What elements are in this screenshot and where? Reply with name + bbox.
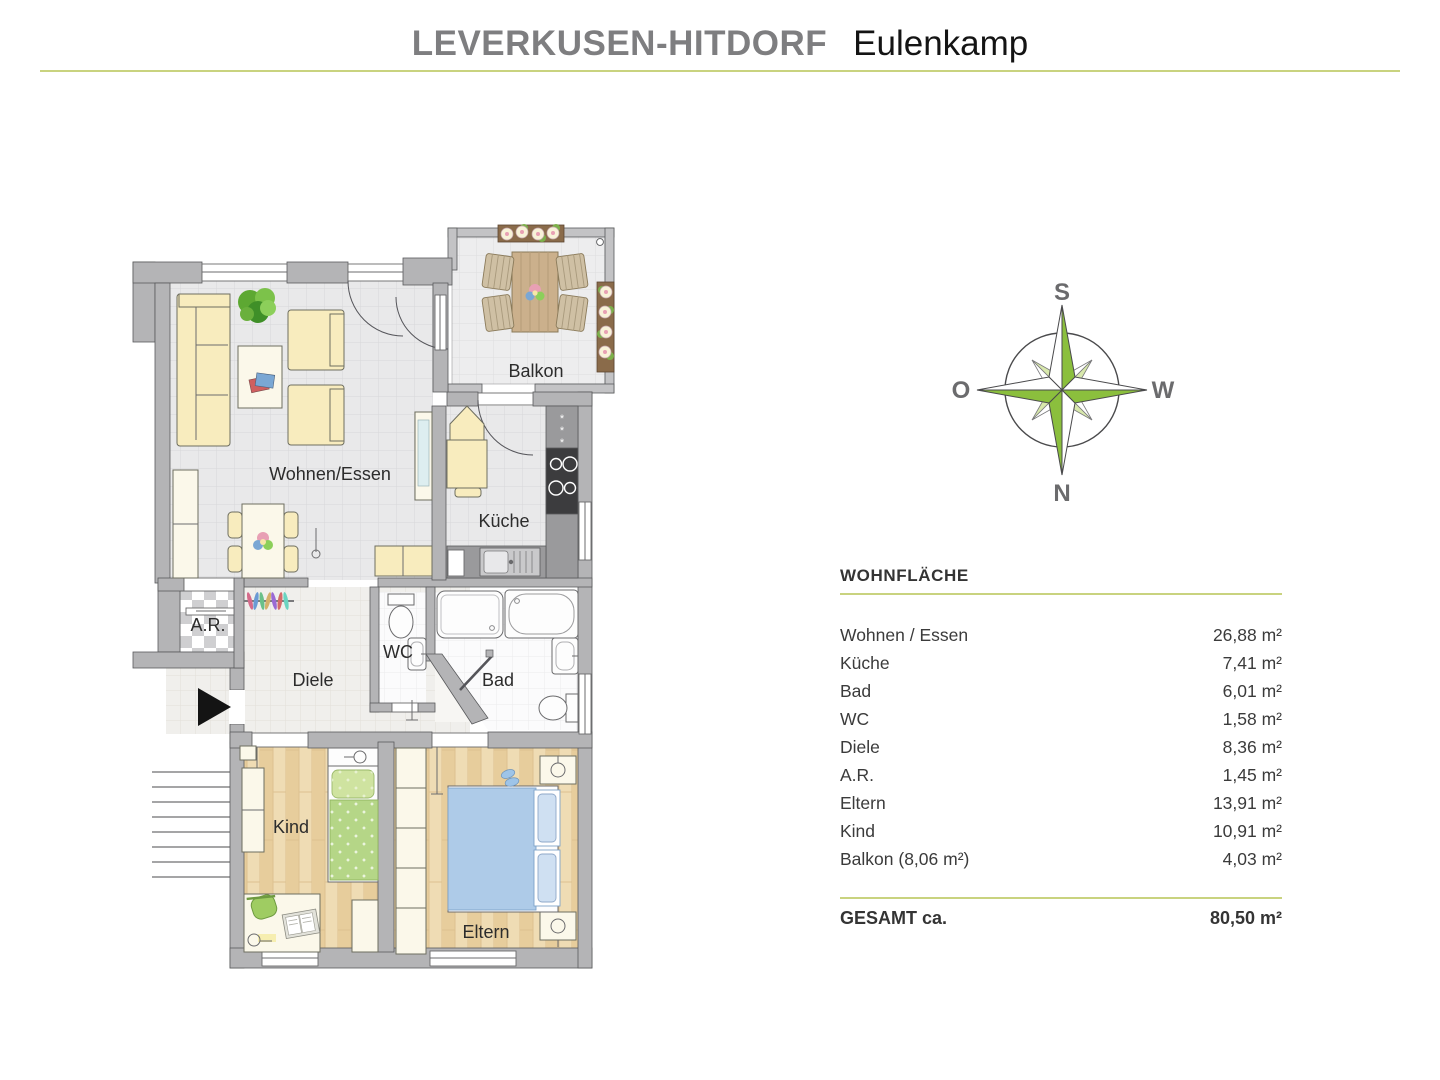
compass-main-points — [977, 305, 1147, 475]
svg-text:*: * — [560, 413, 565, 425]
title-location: LEVERKUSEN-HITDORF — [412, 24, 827, 64]
area-table-total: GESAMT ca. 80,50 m² — [840, 897, 1282, 929]
row-value: 8,36 m² — [1223, 737, 1282, 758]
row-label: Küche — [840, 653, 890, 674]
child-wardrobe — [242, 768, 264, 852]
wc-toilet — [388, 594, 414, 638]
header-divider — [40, 70, 1400, 72]
label-storage: A.R. — [190, 615, 225, 635]
svg-text:*: * — [560, 437, 565, 449]
balcony-table — [512, 252, 558, 332]
flower-planter-right — [597, 282, 614, 372]
row-value: 1,58 m² — [1223, 709, 1282, 730]
armchair — [288, 385, 344, 445]
armchair — [288, 310, 344, 370]
tall-cabinet — [415, 412, 432, 500]
table-row: Diele8,36 m² — [840, 733, 1282, 761]
bath-sink — [552, 638, 578, 674]
row-label: Wohnen / Essen — [840, 625, 968, 646]
row-label: WC — [840, 709, 869, 730]
row-label: Bad — [840, 681, 871, 702]
table-row: Eltern13,91 m² — [840, 789, 1282, 817]
table-row: Kind10,91 m² — [840, 817, 1282, 845]
balcony-door-panel — [435, 295, 446, 350]
row-value: 26,88 m² — [1213, 625, 1282, 646]
area-table-title: WOHNFLÄCHE — [840, 566, 1282, 595]
row-value: 4,03 m² — [1223, 849, 1282, 870]
kitchen-window — [579, 502, 591, 560]
table-row: Bad6,01 m² — [840, 677, 1282, 705]
row-value: 10,91 m² — [1213, 821, 1282, 842]
table-row: Küche7,41 m² — [840, 649, 1282, 677]
compass-label-east: O — [952, 377, 971, 404]
label-bath: Bad — [482, 670, 514, 690]
sideboard — [173, 470, 198, 578]
stairs — [152, 772, 230, 877]
entrance-opening — [229, 690, 245, 724]
svg-text:*: * — [560, 425, 565, 437]
table-row: Balkon (8,06 m²)4,03 m² — [840, 845, 1282, 873]
parents-window — [430, 951, 516, 966]
total-value: 80,50 m² — [1210, 908, 1282, 929]
row-value: 1,45 m² — [1223, 765, 1282, 786]
area-table-rows: Wohnen / Essen26,88 m² Küche7,41 m² Bad6… — [840, 621, 1282, 873]
label-balcony: Balkon — [508, 361, 563, 381]
compass-rose: S N O W — [940, 268, 1190, 518]
compass-label-north: N — [1053, 480, 1070, 507]
row-label: Balkon (8,06 m²) — [840, 849, 969, 870]
compass-label-south: S — [1054, 279, 1070, 306]
total-label: GESAMT ca. — [840, 908, 947, 929]
row-label: Eltern — [840, 793, 886, 814]
parents-bed — [448, 786, 560, 912]
child-small-box — [240, 746, 256, 760]
child-window — [262, 951, 318, 966]
table-row: Wohnen / Essen26,88 m² — [840, 621, 1282, 649]
area-table: WOHNFLÄCHE Wohnen / Essen26,88 m² Küche7… — [840, 566, 1282, 929]
row-value: 13,91 m² — [1213, 793, 1282, 814]
title-project: Eulenkamp — [853, 24, 1028, 64]
row-label: A.R. — [840, 765, 874, 786]
sofa — [177, 294, 230, 446]
row-value: 7,41 m² — [1223, 653, 1282, 674]
label-living: Wohnen/Essen — [269, 464, 391, 484]
living-window — [202, 264, 287, 281]
flower-planter-top — [498, 224, 564, 242]
row-label: Kind — [840, 821, 875, 842]
kitchen-counter-bottom — [447, 546, 546, 578]
table-row: A.R.1,45 m² — [840, 761, 1282, 789]
nightstand — [540, 756, 576, 784]
balcony-corner-detail — [597, 239, 604, 246]
parents-wardrobe — [396, 748, 426, 954]
compass-label-west: W — [1152, 377, 1175, 404]
sideboard — [375, 546, 432, 576]
kitchen-counter-right: * * * — [546, 406, 578, 578]
label-parents: Eltern — [462, 922, 509, 942]
bathtub — [505, 590, 578, 638]
row-value: 6,01 m² — [1223, 681, 1282, 702]
child-bed — [328, 748, 378, 882]
floorplan: * * * — [118, 220, 648, 990]
child-cabinet — [352, 900, 378, 952]
coffee-table — [238, 346, 282, 408]
bath-window — [579, 674, 591, 734]
label-child: Kind — [273, 817, 309, 837]
shower — [437, 591, 503, 638]
label-hall: Diele — [292, 670, 333, 690]
page-title: LEVERKUSEN-HITDORF Eulenkamp — [0, 24, 1440, 64]
row-label: Diele — [840, 737, 880, 758]
label-wc: WC — [383, 642, 413, 662]
table-row: WC1,58 m² — [840, 705, 1282, 733]
label-kitchen: Küche — [478, 511, 529, 531]
bath-toilet — [539, 694, 578, 722]
